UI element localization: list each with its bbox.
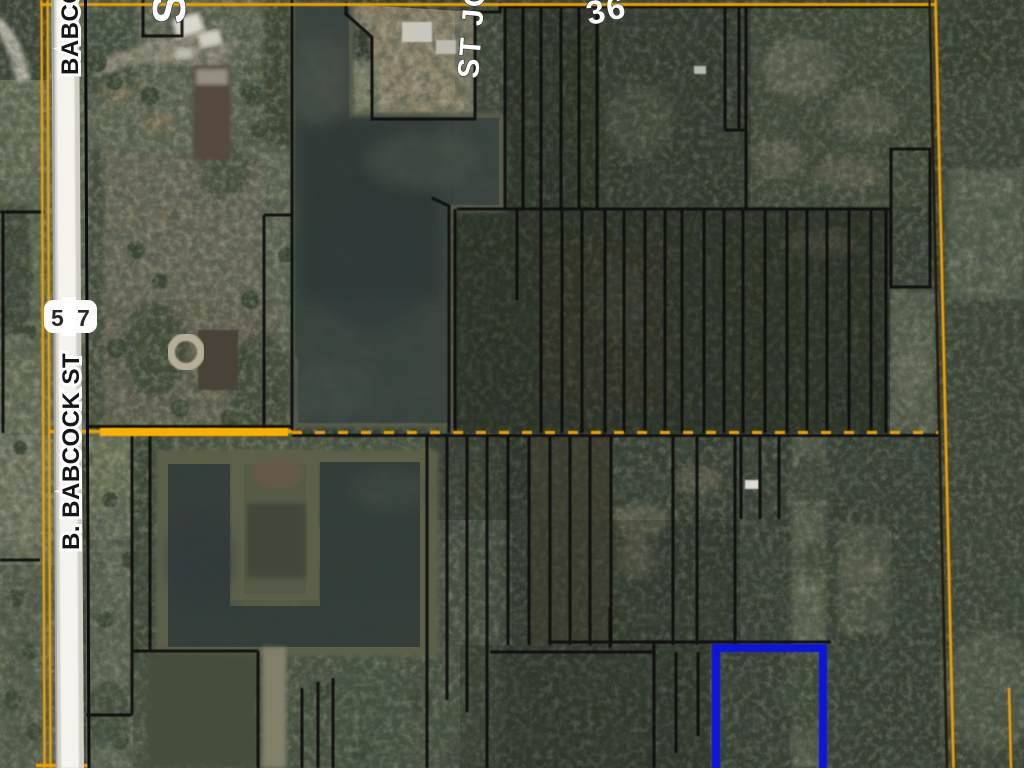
svg-text:S: S <box>143 0 195 24</box>
svg-text:BABCOCK ST: BABCOCK ST <box>57 0 84 75</box>
svg-text:B. BABCOCK ST: B. BABCOCK ST <box>58 353 85 550</box>
svg-text:5: 5 <box>51 305 64 331</box>
svg-text:7: 7 <box>77 305 90 331</box>
